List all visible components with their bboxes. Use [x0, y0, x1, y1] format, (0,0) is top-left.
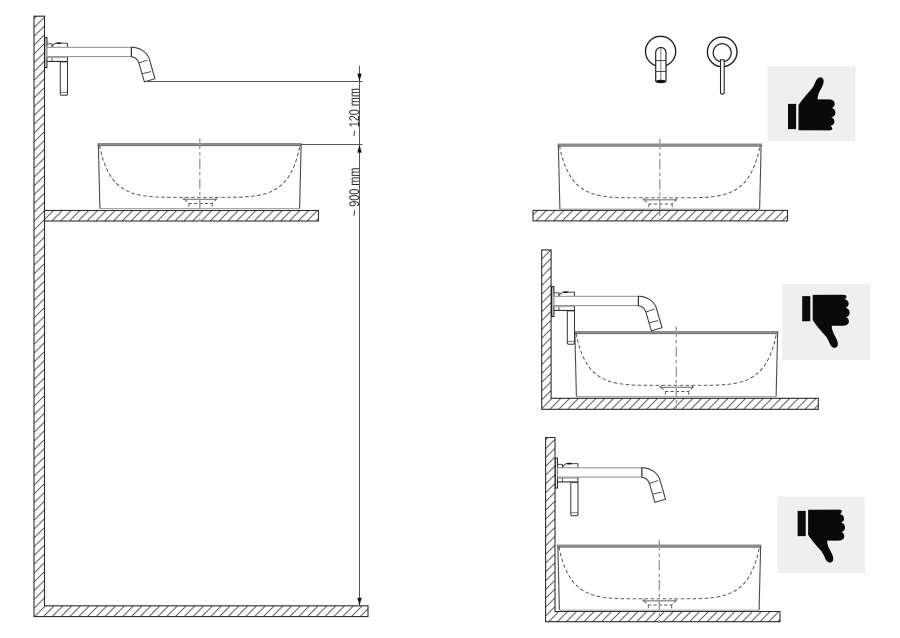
svg-text:~ 120 mm: ~ 120 mm: [346, 88, 362, 137]
svg-text:~ 900 mm: ~ 900 mm: [346, 168, 362, 217]
